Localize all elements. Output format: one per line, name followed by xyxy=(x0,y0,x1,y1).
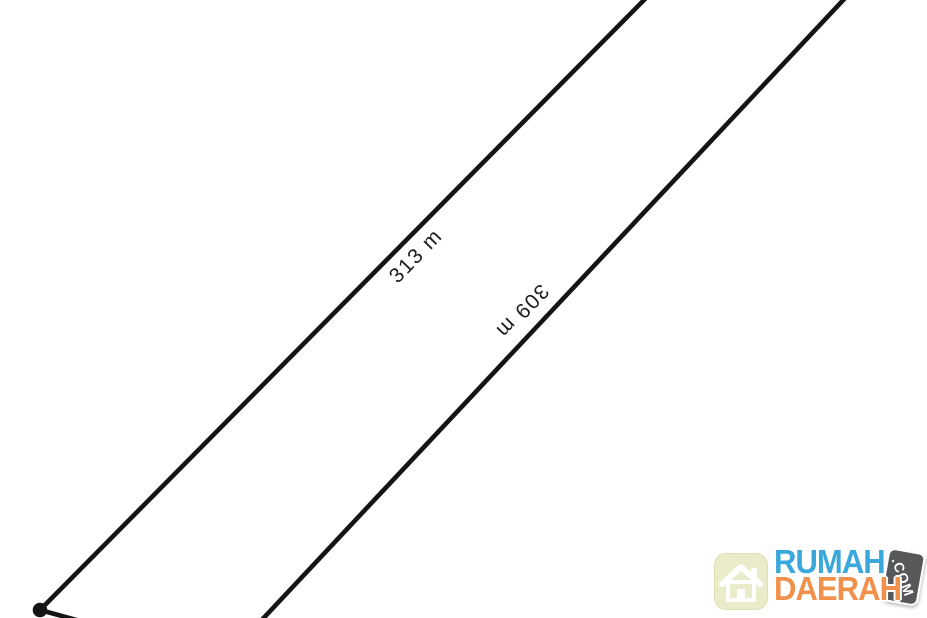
brand-wordmark: RUMAH DAERAH xyxy=(774,548,901,602)
length-label-309m: 309 m xyxy=(491,279,553,342)
land-plot-sketch: 313 m 309 m RUMAH DAERAH .COM xyxy=(0,0,927,618)
brand-name-daerah: DAERAH xyxy=(774,575,901,602)
plot-boundaries-svg: 313 m 309 m xyxy=(0,0,927,618)
house-icon xyxy=(714,553,768,610)
vertex-dot xyxy=(33,603,48,618)
boundary-segment-bottom xyxy=(40,610,124,618)
rumahdaerah-watermark: RUMAH DAERAH .COM xyxy=(712,547,924,615)
length-label-313m: 313 m xyxy=(385,224,447,287)
